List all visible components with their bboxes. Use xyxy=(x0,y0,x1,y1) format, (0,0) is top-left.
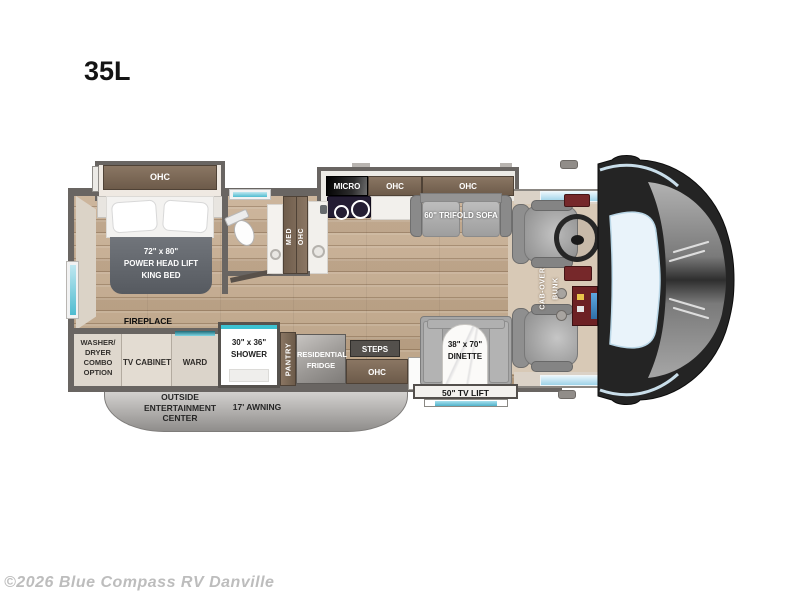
bath-sink xyxy=(270,249,281,260)
bath-vanity xyxy=(267,204,283,274)
kitchen-sink xyxy=(312,245,325,258)
dinette-seat-right xyxy=(489,321,509,383)
entry-steps: STEPS xyxy=(350,340,400,357)
cooktop xyxy=(327,196,371,218)
med-label: MED xyxy=(286,227,293,244)
floorplan-page: 35L OUTSIDE ENTERTAINMENT CENTER 17' AWN… xyxy=(0,0,800,600)
trifold-sofa: 60" TRIFOLD SOFA xyxy=(410,193,512,239)
bath-window xyxy=(229,189,271,200)
shower-size: 30" x 36" xyxy=(221,337,277,349)
kitchen-counter xyxy=(371,196,411,220)
front-cap xyxy=(552,152,752,408)
sofa-label: 60" TRIFOLD SOFA xyxy=(410,211,512,221)
shower-pan xyxy=(229,369,269,382)
micro-label: MICRO xyxy=(327,182,367,192)
shower: 30" x 36" SHOWER xyxy=(218,322,280,388)
washer-line2: DRYER xyxy=(74,348,122,358)
pantry-label: PANTRY xyxy=(284,342,293,376)
ward-counter xyxy=(175,331,215,336)
residential-fridge: RESIDENTIAL FRIDGE xyxy=(296,334,346,384)
fridge-line2: FRIDGE xyxy=(297,361,345,372)
page-title: 35L xyxy=(84,56,131,87)
mirror-bottom xyxy=(558,390,576,399)
tv-lift-label: 50" TV LIFT xyxy=(415,388,516,399)
bath-window-glass xyxy=(233,192,267,197)
microwave: MICRO xyxy=(326,176,368,196)
bedroom-ohc-label: OHC xyxy=(103,172,217,183)
shower-name: SHOWER xyxy=(221,349,277,361)
slide-arm xyxy=(92,166,99,192)
fireplace-label: FIREPLACE xyxy=(116,316,180,327)
bath-ohc: OHC xyxy=(295,210,308,262)
tv-lift-tray xyxy=(424,399,508,407)
faucet xyxy=(320,205,327,214)
washer-dryer-label: WASHER/ DRYER COMBO OPTION xyxy=(74,338,122,379)
tv-lift: 50" TV LIFT xyxy=(413,384,518,399)
tv-screen xyxy=(435,401,497,406)
sofa-ohc-label: OHC xyxy=(423,182,513,192)
entry-ohc-label: OHC xyxy=(347,368,407,378)
bed-head xyxy=(106,196,214,238)
slide-tab-2 xyxy=(500,163,512,167)
pillow-left xyxy=(111,199,158,233)
entry-ohc-cabinet: OHC xyxy=(346,359,408,384)
king-bed-label: 72" x 80" POWER HEAD LIFT KING BED xyxy=(110,246,212,282)
shower-label: 30" x 36" SHOWER xyxy=(221,337,277,361)
bunk-line1: CAB-OVER xyxy=(537,268,550,310)
pillow-right xyxy=(162,199,209,233)
bath-ohc-label: OHC xyxy=(298,227,305,244)
wall-bed-bath xyxy=(222,194,228,294)
bed-feature: POWER HEAD LIFT xyxy=(110,258,212,270)
dinette-name: DINETTE xyxy=(443,351,487,363)
outside-entertainment-label: OUTSIDE ENTERTAINMENT CENTER xyxy=(126,392,234,424)
bed-size: 72" x 80" xyxy=(110,246,212,258)
washer-line3: COMBO xyxy=(74,358,122,368)
fridge-line1: RESIDENTIAL xyxy=(297,350,345,361)
dinette-seat-left xyxy=(423,321,443,383)
washer-line1: WASHER/ xyxy=(74,338,122,348)
oec-line2: ENTERTAINMENT xyxy=(126,403,234,414)
washer-dryer-closet: WASHER/ DRYER COMBO OPTION xyxy=(74,334,122,386)
steps-label: STEPS xyxy=(351,345,399,355)
fridge-label: RESIDENTIAL FRIDGE xyxy=(297,350,345,371)
shower-glass-edge xyxy=(221,325,277,329)
king-bed: 72" x 80" POWER HEAD LIFT KING BED xyxy=(110,237,212,294)
wardrobe: WARD xyxy=(172,334,218,386)
bedroom-window-glass xyxy=(70,265,76,315)
burner-small xyxy=(334,205,349,220)
pantry: PANTRY xyxy=(280,332,296,386)
kitchen-ohc-label: OHC xyxy=(369,182,421,192)
burner-large xyxy=(351,200,370,219)
dinette-size: 38" x 70" xyxy=(443,339,487,351)
awning-label: 17' AWNING xyxy=(224,402,290,413)
rear-wardrobe-trim xyxy=(76,196,96,330)
wardrobe-label: WARD xyxy=(172,358,218,368)
oec-line3: CENTER xyxy=(126,413,234,424)
mirror-top xyxy=(560,160,578,169)
tv-cabinet: TV CABINET xyxy=(122,334,172,386)
tv-cabinet-label: TV CABINET xyxy=(122,358,172,368)
slide-tab-1 xyxy=(352,163,370,167)
watermark: ©2026 Blue Compass RV Danville xyxy=(4,574,274,592)
kitchen-side-counter xyxy=(308,201,328,274)
oec-line1: OUTSIDE xyxy=(126,392,234,403)
dinette-table: 38" x 70" DINETTE xyxy=(442,324,488,388)
bed-type: KING BED xyxy=(110,270,212,282)
windshield xyxy=(610,212,660,348)
washer-line4: OPTION xyxy=(74,368,122,378)
dinette-label: 38" x 70" DINETTE xyxy=(443,339,487,363)
